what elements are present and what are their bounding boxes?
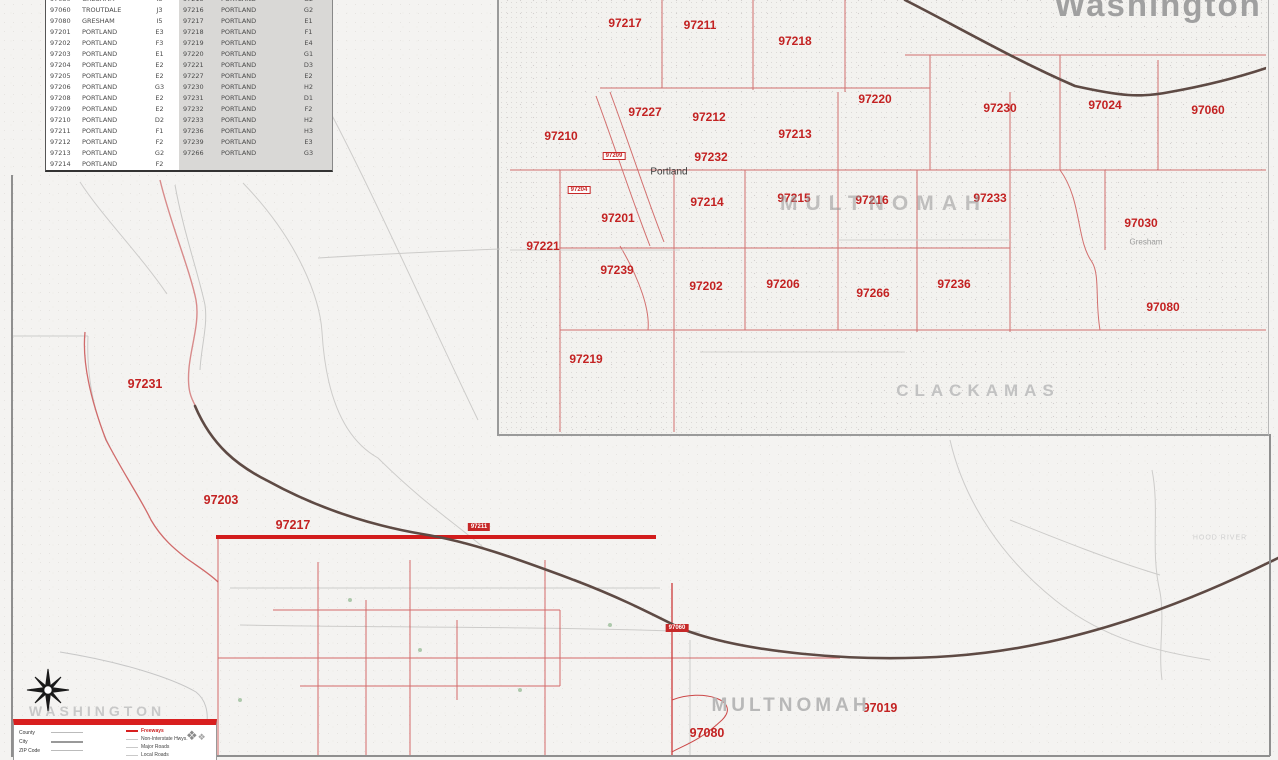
city-line-swatch (51, 741, 83, 743)
columbia-river-main-path (195, 406, 1278, 658)
zip-label: 97080 (690, 726, 725, 740)
table-cell (285, 159, 332, 170)
table-row: 97204PORTLANDE297221PORTLANDD3 (46, 60, 332, 71)
table-cell: G2 (285, 5, 332, 16)
highway-line-swatch (126, 739, 138, 740)
zip-line-swatch (51, 750, 83, 751)
local-road-line-swatch (126, 755, 138, 756)
table-cell: F1 (285, 27, 332, 38)
table-cell: E2 (285, 71, 332, 82)
zip-label: 97231 (128, 377, 163, 391)
table-cell: PORTLAND (82, 71, 140, 82)
table-cell: TROUTDALE (82, 5, 140, 16)
table-cell: 97205 (46, 71, 82, 82)
table-cell: PORTLAND (221, 5, 285, 16)
table-cell: PORTLAND (221, 16, 285, 27)
table-cell: D1 (285, 93, 332, 104)
map-legend: County City ZIP Code Freeways Non-Inters… (13, 719, 217, 760)
legend-label: City (19, 739, 49, 745)
table-cell: 97217 (179, 16, 221, 27)
table-cell: E2 (140, 71, 179, 82)
table-cell: 97239 (179, 137, 221, 148)
zip-label: 97019 (863, 701, 898, 715)
compass-rose-icon (26, 668, 70, 712)
table-cell: G3 (140, 82, 179, 93)
table-cell: PORTLAND (221, 126, 285, 137)
table-row: 97213PORTLANDG297266PORTLANDG3 (46, 148, 332, 159)
legend-logo-icon: ❖❖ (186, 731, 206, 742)
table-cell: D2 (140, 115, 179, 126)
table-cell: E3 (285, 137, 332, 148)
legend-row: Non-Interstate Hwys. (126, 735, 188, 743)
table-cell: PORTLAND (82, 137, 140, 148)
legend-road-items: Freeways Non-Interstate Hwys. Major Road… (126, 727, 188, 759)
zip-label: 97217 (276, 518, 311, 532)
table-cell: PORTLAND (221, 60, 285, 71)
table-row: 97080GRESHAMI597217PORTLANDE1 (46, 16, 332, 27)
legend-row: Freeways (126, 727, 188, 735)
county-label: MULTNOMAH (711, 695, 870, 717)
legend-row: County (19, 728, 83, 737)
table-cell: 97227 (179, 71, 221, 82)
table-cell: G2 (140, 148, 179, 159)
table-cell: G1 (285, 49, 332, 60)
table-cell: PORTLAND (221, 137, 285, 148)
table-cell: 97230 (179, 82, 221, 93)
freeway-line-swatch (126, 730, 138, 732)
table-cell: PORTLAND (82, 60, 140, 71)
logo-diamond-small-icon: ❖ (198, 732, 206, 742)
table-cell: GRESHAM (82, 16, 140, 27)
table-cell: 97210 (46, 115, 82, 126)
table-cell: 97213 (46, 148, 82, 159)
table-cell: F1 (140, 126, 179, 137)
table-row: 97202PORTLANDF397219PORTLANDE4 (46, 38, 332, 49)
table-cell: PORTLAND (82, 82, 140, 93)
table-cell: F2 (285, 104, 332, 115)
table-cell: 97203 (46, 49, 82, 60)
table-cell: I5 (140, 16, 179, 27)
table-cell: PORTLAND (82, 27, 140, 38)
table-cell: PORTLAND (82, 115, 140, 126)
table-cell: F2 (140, 159, 179, 170)
table-cell: F2 (140, 137, 179, 148)
table-cell: PORTLAND (82, 38, 140, 49)
table-cell: 97221 (179, 60, 221, 71)
table-cell: E4 (285, 38, 332, 49)
table-cell: E2 (140, 104, 179, 115)
legend-row: ZIP Code (19, 746, 83, 755)
county-line-swatch (51, 732, 83, 733)
zip-box-label: 97060 (666, 624, 689, 632)
table-cell: 97219 (179, 38, 221, 49)
table-cell: PORTLAND (82, 159, 140, 170)
table-cell: 97214 (46, 159, 82, 170)
table-cell: PORTLAND (82, 104, 140, 115)
table-row: 97201PORTLANDE397218PORTLANDF1 (46, 27, 332, 38)
table-row: 97208PORTLANDE297231PORTLANDD1 (46, 93, 332, 104)
table-cell: PORTLAND (82, 93, 140, 104)
inset-map-panel (497, 0, 1269, 436)
table-row: 97205PORTLANDE297227PORTLANDE2 (46, 71, 332, 82)
county-label: HOOD RIVER (1193, 535, 1247, 542)
legend-label: Freeways (141, 728, 164, 734)
table-cell: PORTLAND (82, 148, 140, 159)
table-row: 97211PORTLANDF197236PORTLANDH3 (46, 126, 332, 137)
legend-row: Major Roads (126, 743, 188, 751)
table-cell: 97209 (46, 104, 82, 115)
zip-box-label: 97211 (468, 523, 490, 531)
table-cell: 97201 (46, 27, 82, 38)
table-cell: PORTLAND (221, 38, 285, 49)
zip-index-table: 97030GRESHAMI397215PORTLANDG297060TROUTD… (45, 0, 333, 172)
table-row: 97214PORTLANDF2 (46, 159, 332, 170)
legend-area-items: County City ZIP Code (19, 728, 83, 755)
table-cell: PORTLAND (221, 93, 285, 104)
table-cell: F3 (140, 38, 179, 49)
table-cell (179, 159, 221, 170)
table-cell: E2 (140, 60, 179, 71)
table-cell: 97236 (179, 126, 221, 137)
table-cell: PORTLAND (221, 49, 285, 60)
table-row: 97210PORTLANDD297233PORTLANDH2 (46, 115, 332, 126)
table-cell: PORTLAND (82, 126, 140, 137)
table-cell: 97231 (179, 93, 221, 104)
table-cell: PORTLAND (221, 27, 285, 38)
park-dots (238, 598, 612, 702)
table-cell: 97220 (179, 49, 221, 60)
table-row: 97060TROUTDALEJ397216PORTLANDG2 (46, 5, 332, 16)
table-cell: PORTLAND (221, 148, 285, 159)
table-cell: 97204 (46, 60, 82, 71)
legend-label: ZIP Code (19, 748, 49, 754)
major-road-line-swatch (126, 747, 138, 748)
map-root: 9721797211972189722097230970249706097210… (0, 0, 1278, 760)
table-cell: H3 (285, 126, 332, 137)
table-cell: PORTLAND (221, 104, 285, 115)
table-cell: PORTLAND (82, 49, 140, 60)
zip-table-body: 97030GRESHAMI397215PORTLANDG297060TROUTD… (46, 0, 332, 170)
table-cell: E1 (140, 49, 179, 60)
table-cell: H2 (285, 115, 332, 126)
legend-row: City (19, 737, 83, 746)
table-row: 97212PORTLANDF297239PORTLANDE3 (46, 137, 332, 148)
table-cell: 97216 (179, 5, 221, 16)
table-cell: 97218 (179, 27, 221, 38)
table-cell: E1 (285, 16, 332, 27)
table-cell: J3 (140, 5, 179, 16)
table-cell: E3 (140, 27, 179, 38)
table-cell: 97232 (179, 104, 221, 115)
table-cell: 97233 (179, 115, 221, 126)
table-cell: 97266 (179, 148, 221, 159)
table-row: 97209PORTLANDE297232PORTLANDF2 (46, 104, 332, 115)
table-cell: PORTLAND (221, 82, 285, 93)
table-cell: D3 (285, 60, 332, 71)
table-cell: 97206 (46, 82, 82, 93)
table-cell: 97208 (46, 93, 82, 104)
table-cell: 97211 (46, 126, 82, 137)
table-cell: H2 (285, 82, 332, 93)
table-cell: PORTLAND (221, 115, 285, 126)
logo-diamond-icon: ❖ (186, 728, 198, 743)
table-cell: 97202 (46, 38, 82, 49)
table-row: 97206PORTLANDG397230PORTLANDH2 (46, 82, 332, 93)
table-cell: 97060 (46, 5, 82, 16)
table-cell: 97212 (46, 137, 82, 148)
table-cell: E2 (140, 93, 179, 104)
table-cell: G3 (285, 148, 332, 159)
legend-label: County (19, 730, 49, 736)
legend-row: Local Roads (126, 751, 188, 759)
legend-label: Non-Interstate Hwys. (141, 736, 188, 742)
legend-label: Local Roads (141, 752, 169, 758)
table-cell (221, 159, 285, 170)
table-cell: 97080 (46, 16, 82, 27)
zip-label: 97203 (204, 493, 239, 507)
table-cell: PORTLAND (221, 71, 285, 82)
legend-label: Major Roads (141, 744, 169, 750)
table-row: 97203PORTLANDE197220PORTLANDG1 (46, 49, 332, 60)
